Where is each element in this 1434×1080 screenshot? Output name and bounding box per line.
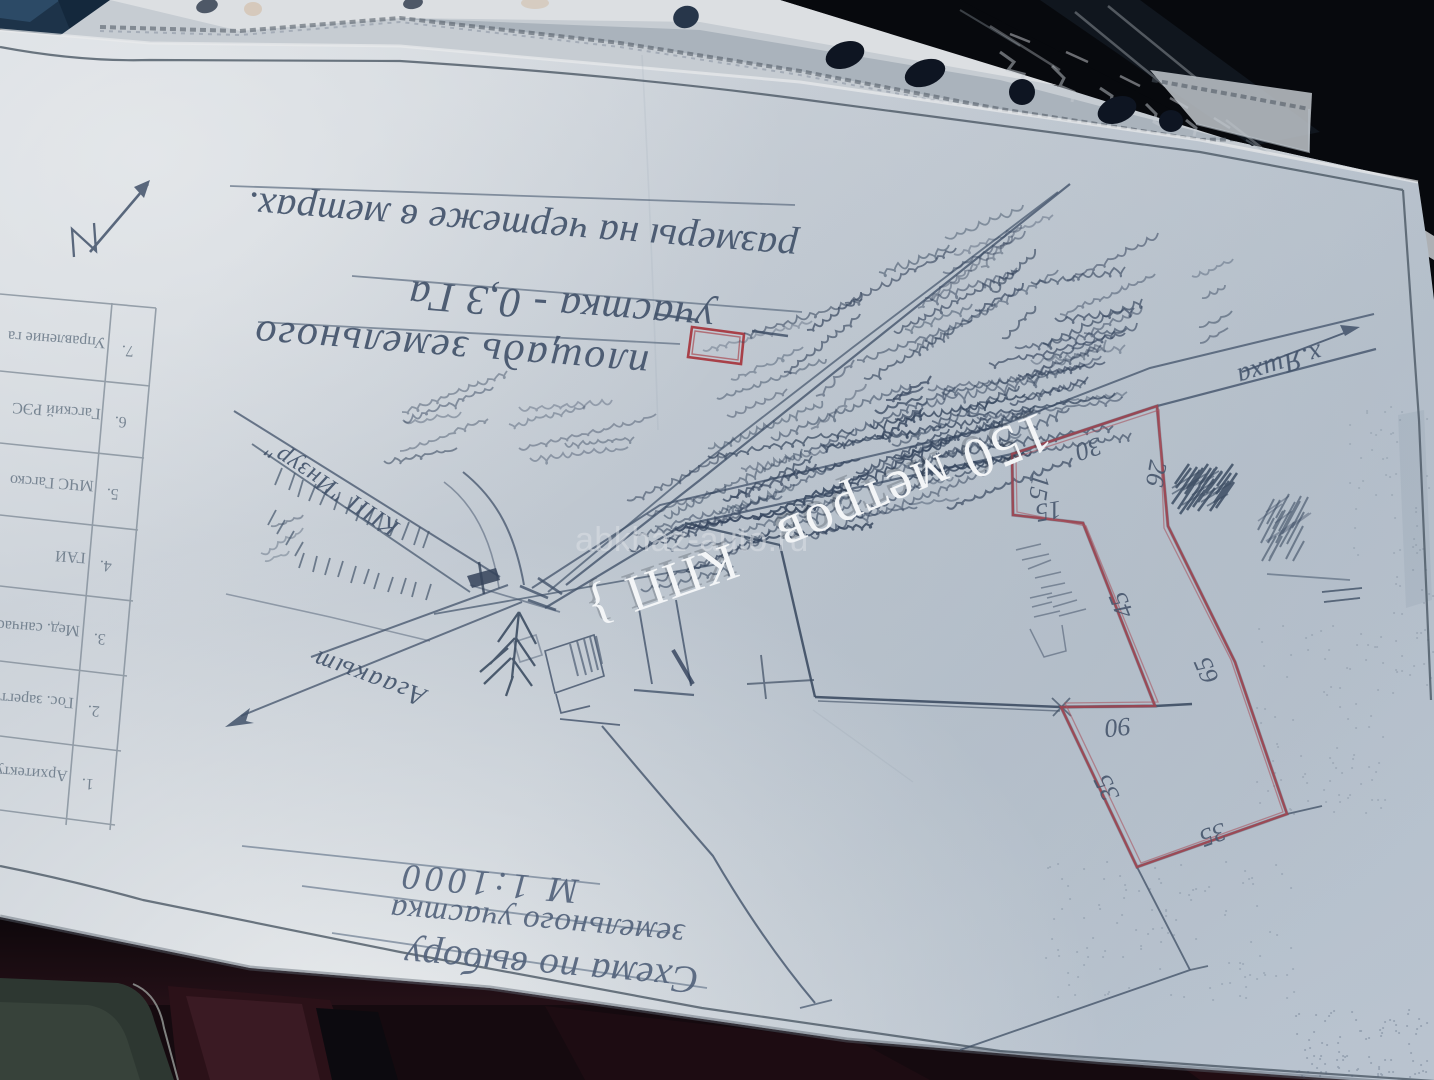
svg-text:7.: 7. [121,342,134,360]
svg-text:3.: 3. [93,630,106,648]
svg-text:2.: 2. [87,702,100,720]
svg-text:ГАИ: ГАИ [54,547,86,566]
svg-text:90: 90 [1103,712,1132,744]
svg-text:26: 26 [1140,458,1173,489]
svg-text:1.: 1. [81,775,94,793]
svg-text:4.: 4. [99,557,112,575]
svg-text:15: 15 [1033,495,1064,528]
svg-text:6.: 6. [114,413,127,431]
svg-text:5.: 5. [106,485,119,503]
